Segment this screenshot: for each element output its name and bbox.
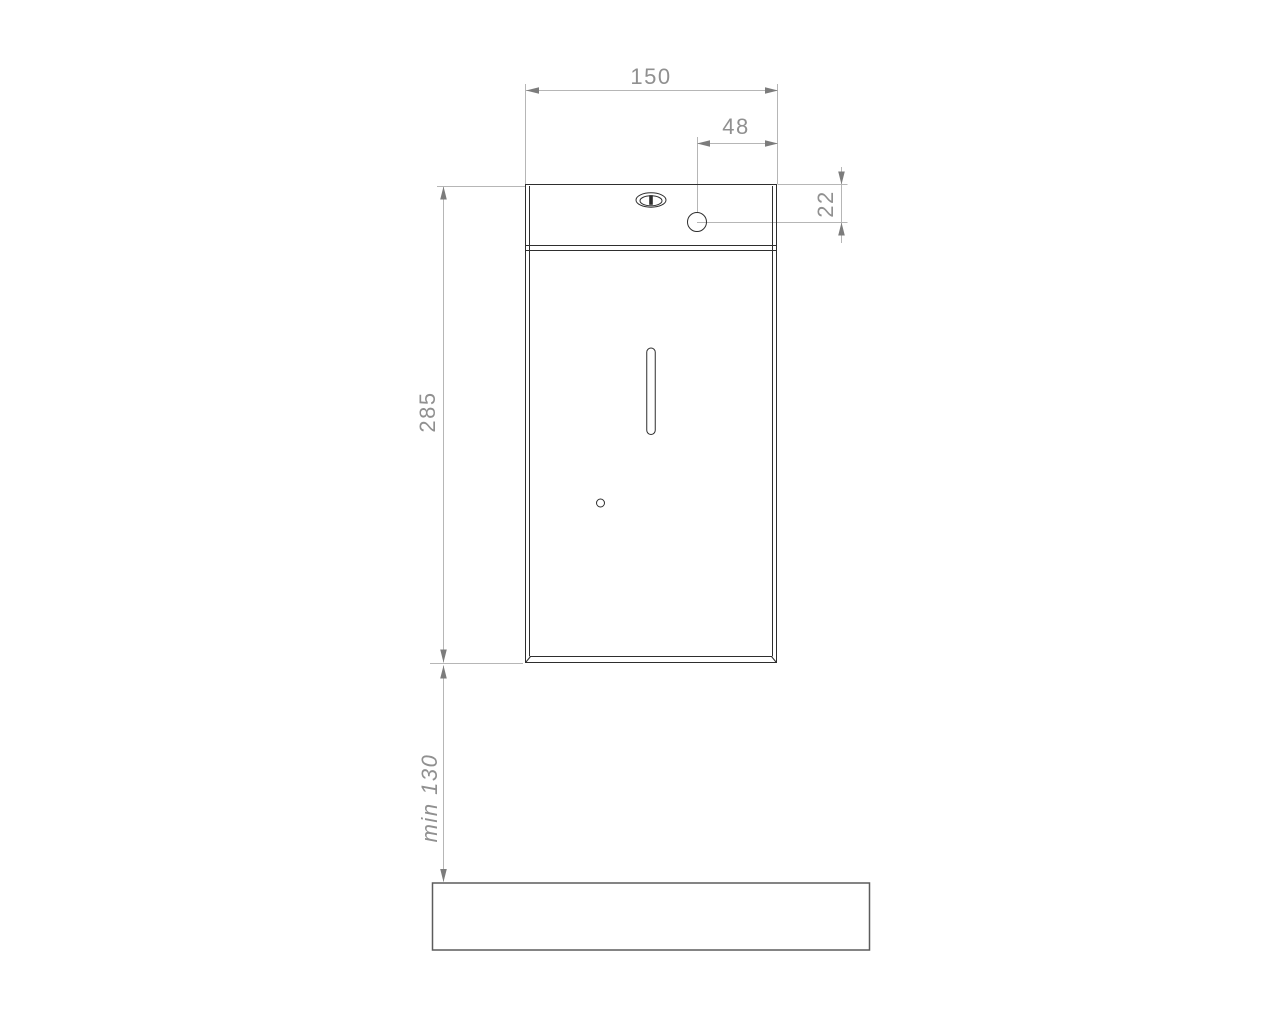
arrow-clearance-bottom-icon (440, 869, 447, 882)
counter-group (433, 883, 870, 950)
lock-keyhole-icon (649, 195, 653, 205)
dim-clearance-label: min 130 (417, 754, 443, 843)
arrow-clearance-top-icon (440, 666, 447, 679)
arrow-height-top-icon (440, 187, 447, 200)
dim-height-label: 285 (415, 391, 441, 432)
dispenser-chamfer-left (526, 657, 531, 663)
arrow-height-bottom-icon (440, 650, 447, 663)
dim-hole-offset-label: 48 (722, 114, 749, 140)
sight-slot (647, 348, 656, 435)
arrow-width-left-icon (526, 87, 539, 94)
dim-hole-inset-label: 22 (813, 190, 839, 217)
dispenser-outer-casing (526, 185, 777, 663)
arrow-hole-inset-bottom-icon (838, 223, 845, 236)
front-pin-hole (597, 499, 605, 507)
technical-drawing-canvas: 150 48 22 285 min 130 (0, 0, 1280, 1024)
drawing-svg (0, 0, 1280, 1024)
counter-surface (433, 883, 870, 950)
dispenser-outline-group (526, 185, 777, 663)
dispenser-chamfer-right (772, 657, 777, 663)
arrow-width-right-icon (765, 87, 778, 94)
arrow-hole-inset-top-icon (838, 172, 845, 185)
arrow-hole-offset-right-icon (765, 140, 778, 147)
dim-width-label: 150 (630, 64, 671, 90)
arrow-hole-offset-left-icon (697, 140, 710, 147)
